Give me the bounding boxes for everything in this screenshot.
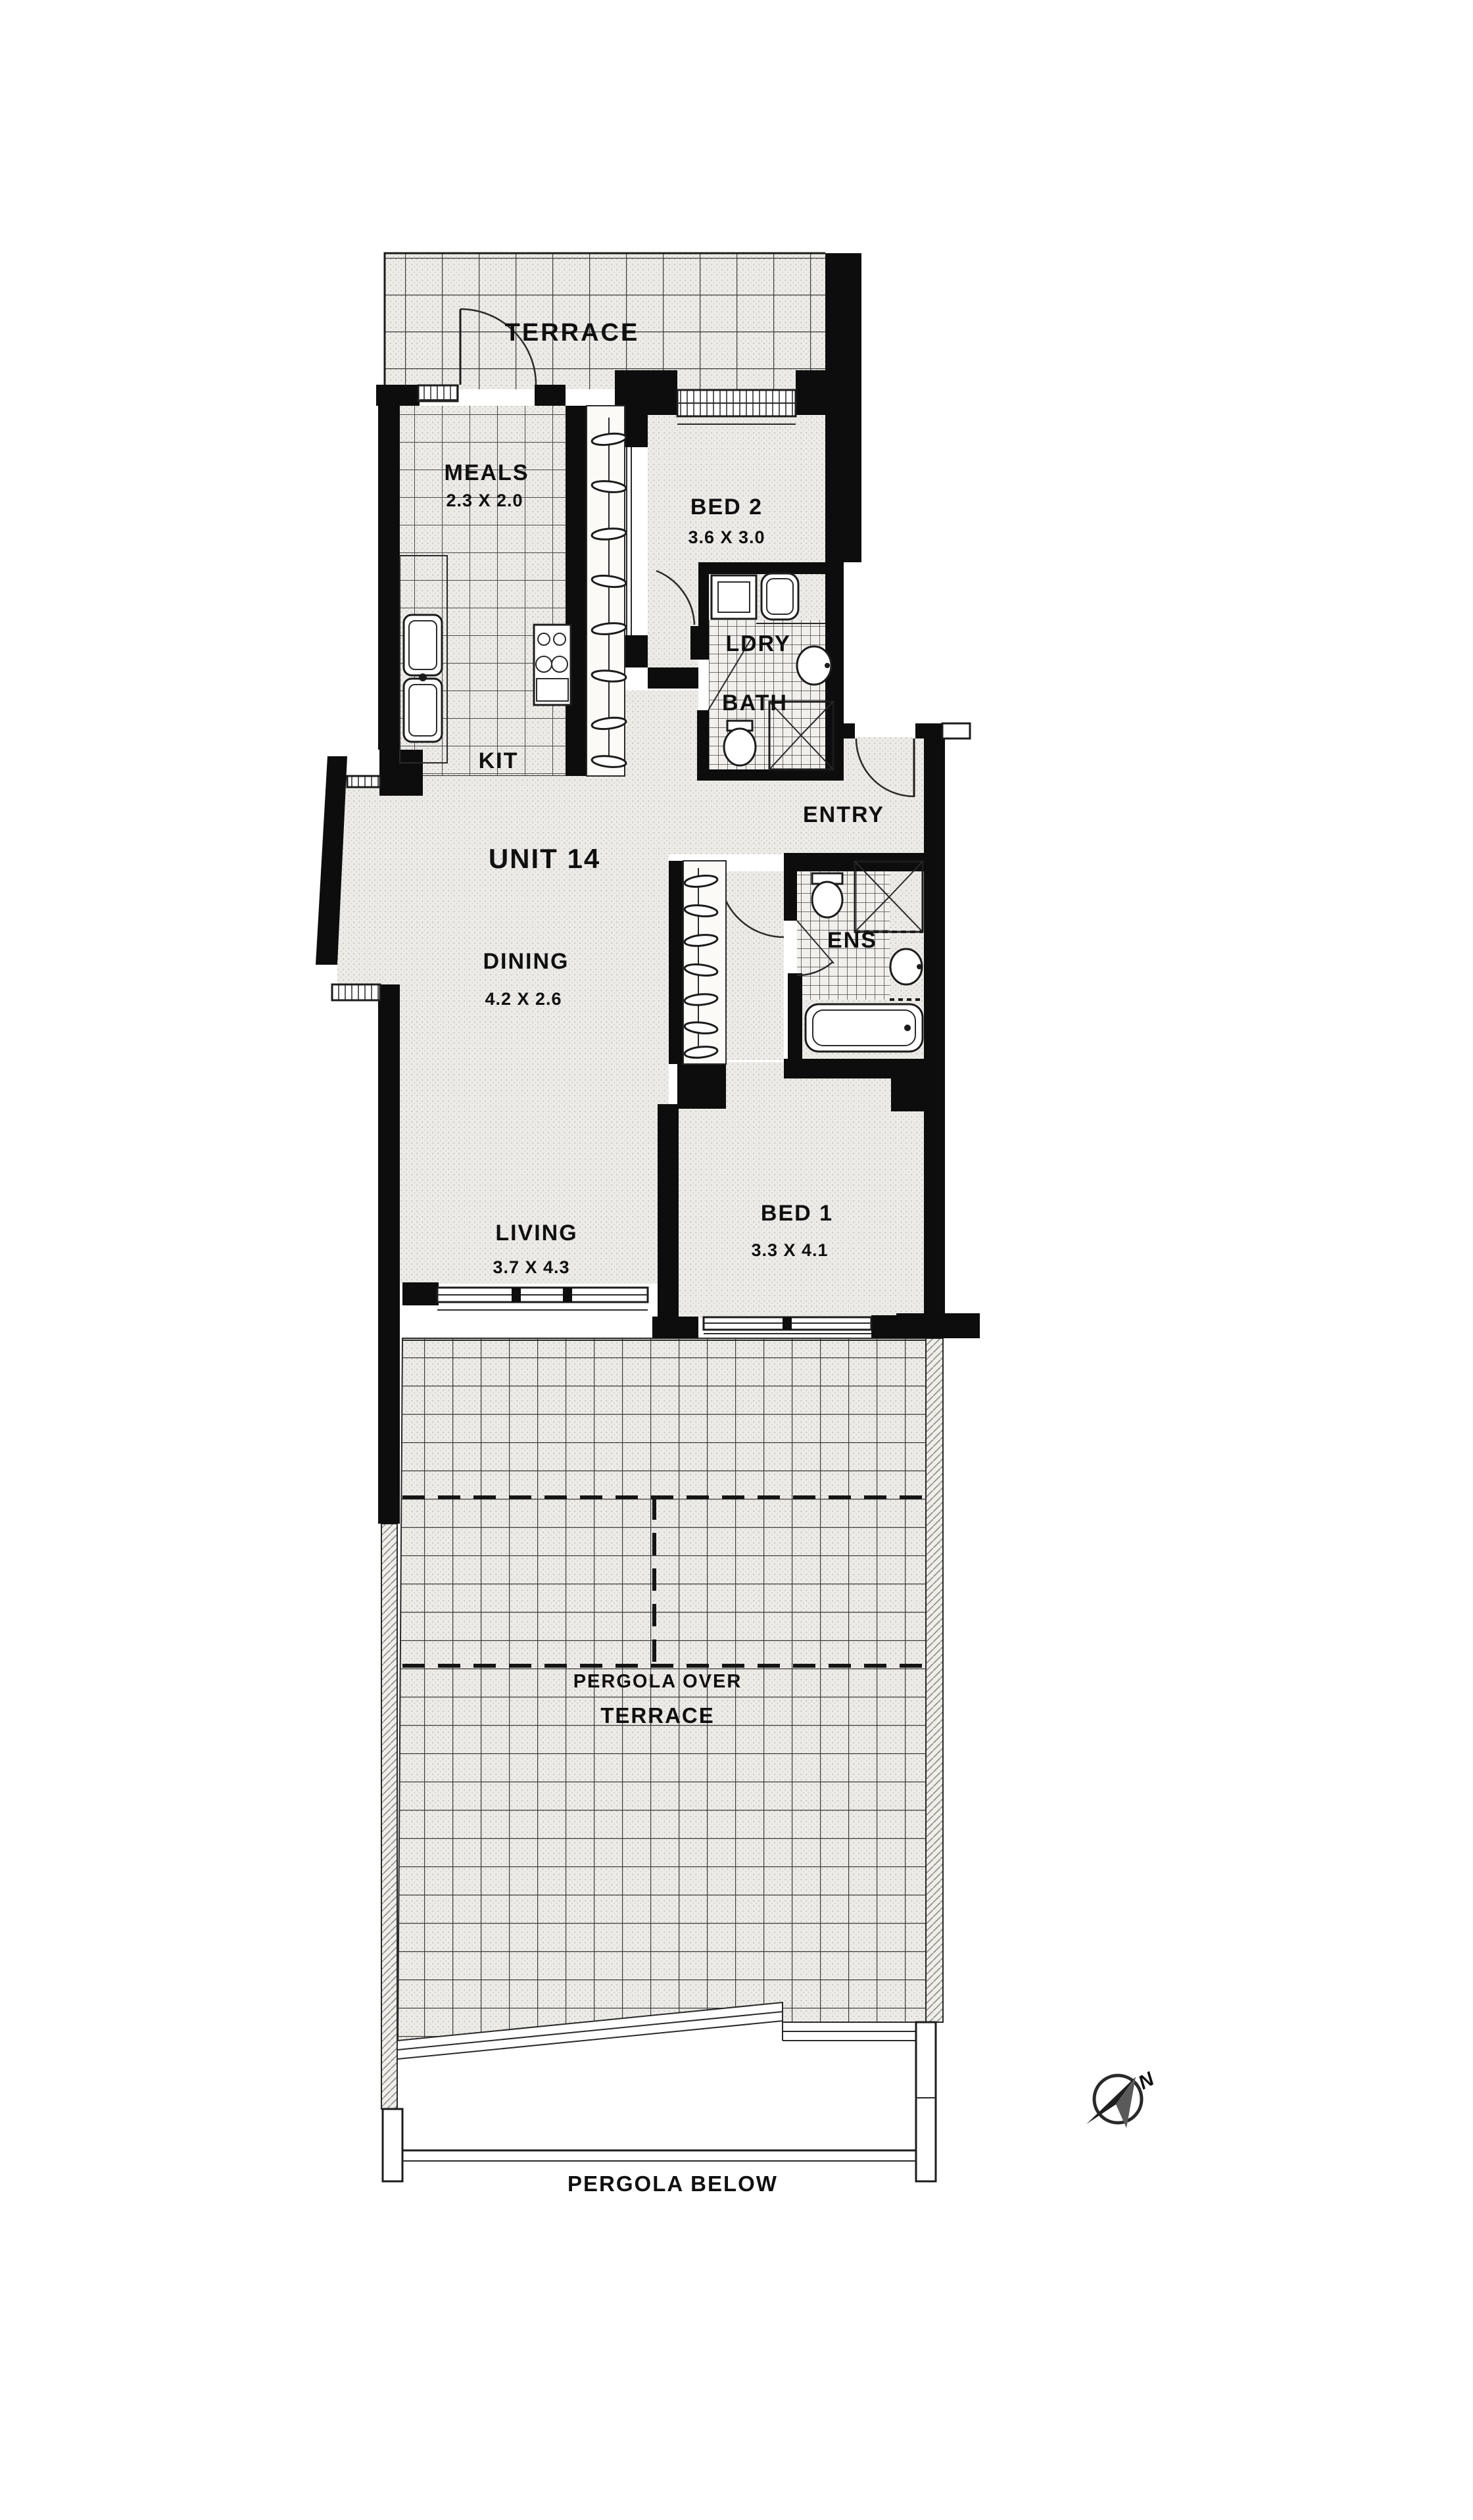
north-arrow-shadow-icon [1116,2077,1136,2128]
compass: N [1086,2068,1159,2128]
living-terrace-door-window [437,1288,648,1310]
label-living-dims: 3.7 X 4.3 [493,1257,569,1277]
meals-terrace-window [418,385,458,401]
label-ensuite: ENS [827,928,877,953]
label-dining-dims: 4.2 X 2.6 [485,989,562,1009]
bathtub-icon [806,1004,923,1052]
bed2-robe [587,406,631,776]
label-unit: UNIT 14 [489,843,600,874]
label-bed1: BED 1 [761,1201,833,1226]
label-living: LIVING [495,1221,577,1246]
ens-toilet-icon [812,873,842,917]
label-entry: ENTRY [803,802,884,827]
label-meals: MEALS [445,460,529,485]
dining-bay-window-top [347,776,380,787]
hall-floor-b [625,691,698,783]
label-bed2-dims: 3.6 X 3.0 [688,527,765,547]
label-bed1-dims: 3.3 X 4.1 [751,1240,828,1260]
label-bathroom: BATH [722,691,788,715]
laundry-tub-icon [761,573,798,619]
terrace-right-edge-strip [926,1338,943,2022]
label-laundry: LDRY [725,631,790,656]
label-kitchen: KIT [479,748,519,773]
stove-icon [534,625,571,705]
ldry-basin-icon [797,646,831,685]
floorplan-canvas: N TERRACE MEALS 2.3 X 2.0 BED 2 3.6 X 3.… [0,0,1473,2520]
bay-floor [337,787,401,984]
label-pergola-terrace: TERRACE [600,1703,715,1728]
terrace-left-edge-strip [381,1524,397,2109]
bed1-terrace-window [704,1317,871,1334]
label-dining: DINING [483,949,569,974]
pergola-below-frame [383,2022,936,2181]
washing-machine-icon [712,575,756,619]
dining-bay-window-bottom [332,984,380,1000]
label-bed2: BED 2 [690,495,763,520]
bath-toilet-icon [724,721,756,765]
ens-basin-icon [890,949,922,984]
label-terrace-top: TERRACE [505,319,640,347]
bed1-robe [683,861,726,1064]
bed1-hall-floor [726,871,784,1060]
label-pergola-over: PERGOLA OVER [573,1671,742,1692]
kitchen-sink-icon [404,615,442,742]
label-meals-dims: 2.3 X 2.0 [446,491,523,510]
label-pergola-below: PERGOLA BELOW [567,2171,778,2196]
entry-outer-step [942,723,970,739]
floorplan-page: N TERRACE MEALS 2.3 X 2.0 BED 2 3.6 X 3.… [0,0,1473,2520]
